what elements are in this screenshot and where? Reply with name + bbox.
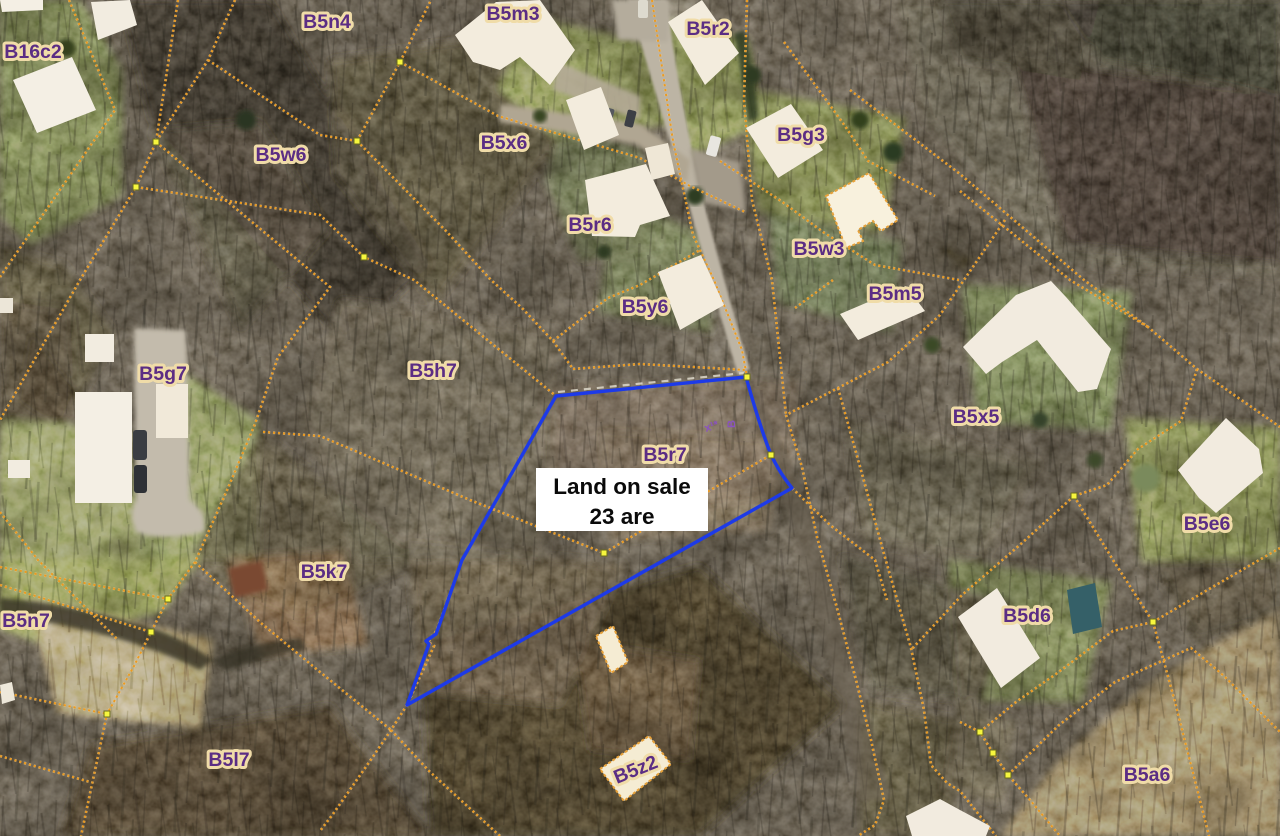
- svg-text:B5k7: B5k7: [301, 561, 348, 583]
- svg-text:B5x5: B5x5: [953, 406, 1000, 428]
- svg-text:B5e6: B5e6: [1184, 513, 1231, 535]
- svg-text:B5r6: B5r6: [568, 214, 612, 236]
- svg-text:B5r7: B5r7: [643, 444, 686, 466]
- svg-text:B5w6: B5w6: [256, 144, 307, 166]
- svg-text:B5y6: B5y6: [622, 296, 669, 318]
- svg-text:B5a6: B5a6: [1124, 764, 1171, 786]
- svg-text:B: B: [726, 420, 738, 428]
- svg-text:B5n7: B5n7: [2, 610, 50, 632]
- svg-text:B5w3: B5w3: [794, 238, 845, 260]
- svg-text:B5r2: B5r2: [686, 18, 730, 40]
- svg-text:B5l7: B5l7: [208, 749, 249, 771]
- svg-text:B5m5: B5m5: [868, 283, 921, 305]
- svg-text:B5g3: B5g3: [777, 124, 825, 146]
- svg-text:B5h7: B5h7: [409, 360, 457, 382]
- svg-text:B5d6: B5d6: [1003, 605, 1051, 627]
- svg-text:B5g7: B5g7: [139, 363, 187, 385]
- svg-text:23 are: 23 are: [589, 504, 654, 529]
- svg-text:B5n4: B5n4: [303, 11, 351, 33]
- svg-text:B5m3: B5m3: [486, 3, 539, 25]
- svg-text:Land on sale: Land on sale: [553, 474, 691, 499]
- svg-text:B16c2: B16c2: [4, 41, 62, 63]
- svg-text:B5x6: B5x6: [481, 132, 528, 154]
